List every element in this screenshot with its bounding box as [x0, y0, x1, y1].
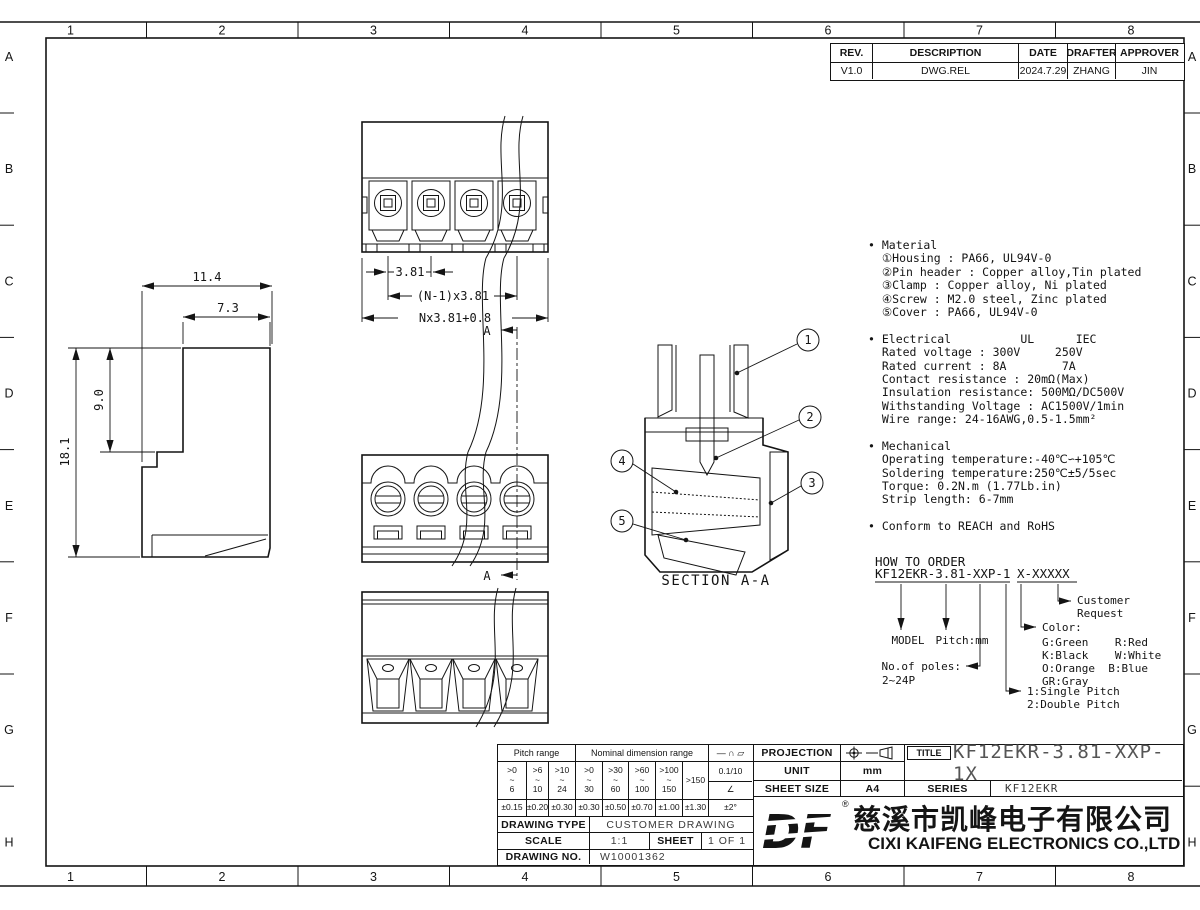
zone-label: A [5, 50, 14, 64]
company-logo: DF [758, 803, 844, 859]
screws [371, 482, 534, 539]
tol-cell: ±0.15 [498, 800, 526, 816]
note-line: Torque: 0.2N.m (1.77Lb.in) [868, 479, 1168, 492]
zone-label: F [5, 611, 13, 625]
drafter-header: DRAFTER [1067, 44, 1115, 62]
rev-header: REV. [831, 44, 872, 62]
zone-label: 4 [522, 870, 529, 884]
order-type-2: 2:Double Pitch [1027, 698, 1120, 711]
angle-tol-cell: ±2° [708, 800, 752, 816]
note-line: Wire range: 24-16AWG,0.5-1.5mm² [868, 412, 1168, 425]
tol-cell: ±0.30 [575, 800, 602, 816]
zone-label: 1 [67, 870, 74, 884]
note-line: • Mechanical [868, 439, 1168, 452]
section-marker-top: A [483, 324, 491, 338]
balloon-5: 5 [618, 514, 625, 528]
company-block: DF ® 慈溪市凯峰电子有限公司 CIXI KAIFENG ELECTRONIC… [754, 796, 1183, 864]
break-lines [452, 116, 523, 727]
zone-label: 2 [219, 24, 226, 38]
tolerance-table: Pitch range Nominal dimension range — ∩ … [497, 744, 754, 866]
tol-cell: ±0.70 [628, 800, 655, 816]
note-line: Withstanding Voltage : AC1500V/1min [868, 399, 1168, 412]
note-line: • Electrical UL IEC [868, 332, 1168, 345]
balloon-4: 4 [618, 454, 625, 468]
tol-cell: ±0.50 [602, 800, 628, 816]
approver-header: APPROVER [1115, 44, 1183, 62]
sheet-value: 1 OF 1 [701, 833, 752, 849]
order-pitch-label: Pitch:mm [936, 634, 989, 647]
range-cell: >0~6 [498, 762, 526, 799]
order-customer-1: Customer [1077, 594, 1130, 607]
registered-trademark: ® [842, 799, 849, 809]
drawing-type-label: DRAWING TYPE [498, 817, 589, 832]
zone-label: C [4, 274, 13, 288]
drawing-type-value: CUSTOMER DRAWING [589, 817, 752, 832]
how-to-order: HOW TO ORDER KF12EKR-3.81-XXP-1 X-XXXXX … [875, 554, 1161, 711]
general-notes: • Material ①Housing : PA66, UL94V-0 ②Pin… [868, 238, 1168, 533]
note-line [868, 425, 1168, 438]
revision-row: V1.0 DWG.REL 2024.7.29 ZHANG JIN [831, 62, 1184, 80]
drawing-no-value: W10001362 [589, 850, 752, 864]
zone-label: H [1187, 835, 1196, 849]
rev-value: V1.0 [831, 63, 872, 80]
zone-label: 5 [673, 24, 680, 38]
drawing-no-label: DRAWING NO. [498, 850, 589, 864]
scale-value: 1:1 [589, 833, 649, 849]
balloon-1: 1 [804, 333, 811, 347]
zone-label: 7 [976, 24, 983, 38]
bottom-view [362, 592, 548, 723]
zone-label: A [1188, 50, 1197, 64]
tol-cell: ±1.30 [682, 800, 708, 816]
sheet-size-label: SHEET SIZE [754, 781, 840, 796]
note-line: ③Clamp : Copper alloy, Ni plated [868, 278, 1168, 291]
zone-label: D [1187, 387, 1196, 401]
zone-label: E [1188, 499, 1196, 513]
order-color-row-2: K:Black W:White [1042, 649, 1161, 662]
revision-table: REV. DESCRIPTION DATE DRAFTER APPROVER V… [830, 43, 1185, 81]
zone-label: 4 [522, 24, 529, 38]
scale-label: SCALE [498, 833, 589, 849]
dim-3-81: 3.81 [396, 265, 425, 279]
zone-label: 7 [976, 870, 983, 884]
side-view: 11.4 7.3 9.0 18.1 [58, 270, 272, 557]
company-name-en: CIXI KAIFENG ELECTRONICS CO.,LTD [868, 834, 1180, 854]
drafter-value: ZHANG [1067, 63, 1115, 80]
tol-cell: ±0.20 [526, 800, 548, 816]
projection-label: PROJECTION [754, 745, 840, 761]
order-color-row-1: G:Green R:Red [1042, 636, 1148, 649]
range-cell: >60~100 [628, 762, 655, 799]
zone-label: B [1188, 162, 1196, 176]
date-value: 2024.7.29 [1018, 63, 1067, 80]
tol-cell: ±1.00 [655, 800, 682, 816]
pitch-range-header: Pitch range [498, 745, 575, 761]
zone-label: G [1187, 723, 1197, 737]
unit-value: mm [840, 762, 904, 780]
note-line: Soldering temperature:250℃±5/5sec [868, 466, 1168, 479]
range-cell: >100~150 [655, 762, 682, 799]
dim-9-0: 9.0 [92, 389, 106, 411]
zone-label: 6 [825, 24, 832, 38]
tol-cell: ±0.30 [548, 800, 575, 816]
flatness-tolerance: 0.1/10 ∠ [708, 762, 752, 799]
note-line: Insulation resistance: 500MΩ/DC500V [868, 385, 1168, 398]
range-cell: >30~60 [602, 762, 628, 799]
dim-7-3: 7.3 [217, 301, 239, 315]
note-line: Strip length: 6-7mm [868, 492, 1168, 505]
zone-label: 1 [67, 24, 74, 38]
note-line: Contact resistance : 20mΩ(Max) [868, 372, 1168, 385]
sheet-size-value: A4 [840, 781, 904, 796]
balloon-3: 3 [808, 476, 815, 490]
note-line: ④Screw : M2.0 steel, Zinc plated [868, 292, 1168, 305]
first-angle-projection-icon [840, 745, 904, 761]
section-view: 1 2 3 4 5 SECTION A-A [611, 329, 823, 589]
date-header: DATE [1018, 44, 1067, 62]
title-label: TITLE [907, 746, 951, 760]
zone-label: G [4, 723, 14, 737]
sheet-label: SHEET [649, 833, 701, 849]
order-color-row-3: O:Orange B:Blue [1042, 662, 1148, 675]
top-view-dims: 3.81 (N-1)x3.81 Nx3.81+0.8 [362, 256, 548, 325]
note-line [868, 318, 1168, 331]
nominal-range-header: Nominal dimension range [575, 745, 708, 761]
note-line: ②Pin header : Copper alloy,Tin plated [868, 265, 1168, 278]
order-customer-2: Request [1077, 607, 1123, 620]
order-poles-range: 2~24P [882, 674, 915, 687]
zone-label: D [4, 387, 13, 401]
order-code-suffix: X-XXXXX [1017, 566, 1070, 581]
title-block: PROJECTION UNIT mm SHEET SIZE A4 [753, 744, 1184, 866]
note-line: Rated voltage : 300V 250V [868, 345, 1168, 358]
range-cell: >10~24 [548, 762, 575, 799]
engineering-drawing-sheet: 1122334455667788AABBCCDDEEFFGGHH 11.4 7.… [0, 0, 1200, 910]
unit-label: UNIT [754, 762, 840, 780]
order-code-main: KF12EKR-3.81-XXP-1 [875, 566, 1010, 581]
note-line: ⑤Cover : PA66, UL94V-0 [868, 305, 1168, 318]
zone-label: 6 [825, 870, 832, 884]
zone-label: 2 [219, 870, 226, 884]
zone-label: C [1187, 274, 1196, 288]
approver-value: JIN [1115, 63, 1183, 80]
note-line: Operating temperature:-40℃∽+105℃ [868, 452, 1168, 465]
zone-label: 3 [370, 24, 377, 38]
order-color-title: Color: [1042, 621, 1082, 634]
balloon-2: 2 [806, 410, 813, 424]
range-cell: >6~10 [526, 762, 548, 799]
dim-total: Nx3.81+0.8 [419, 311, 491, 325]
description-value: DWG.REL [872, 63, 1018, 80]
zone-label: 5 [673, 870, 680, 884]
zone-label: F [1188, 611, 1196, 625]
drawing-title: KF12EKR-3.81-XXP-1X [953, 745, 1182, 780]
order-model-label: MODEL [891, 634, 924, 647]
zone-label: 8 [1128, 24, 1135, 38]
description-header: DESCRIPTION [872, 44, 1018, 62]
zone-label: 3 [370, 870, 377, 884]
note-line [868, 506, 1168, 519]
section-marker-bottom: A [483, 569, 491, 583]
section-label: SECTION A-A [661, 573, 770, 589]
dim-11-4: 11.4 [193, 270, 222, 284]
note-line: Rated current : 8A 7A [868, 359, 1168, 372]
order-poles-label: No.of poles: [882, 660, 961, 673]
order-type-1: 1:Single Pitch [1027, 685, 1120, 698]
zone-label: E [5, 499, 13, 513]
zone-label: 8 [1128, 870, 1135, 884]
dim-n-1-pitch: (N-1)x3.81 [417, 289, 489, 303]
zone-label: B [5, 162, 13, 176]
geometry-symbols: — ∩ ▱ [708, 745, 752, 761]
front-view [362, 455, 548, 562]
note-line: • Material [868, 238, 1168, 251]
dim-18-1: 18.1 [58, 438, 72, 467]
note-line: ①Housing : PA66, UL94V-0 [868, 251, 1168, 264]
clamp-units [366, 181, 544, 252]
range-cell-max: >150 [682, 762, 708, 799]
top-view: 3.81 (N-1)x3.81 Nx3.81+0.8 [362, 122, 548, 325]
balloon-callouts: 1 2 3 4 5 [611, 329, 823, 542]
zone-label: H [4, 835, 13, 849]
range-cell: >0~30 [575, 762, 602, 799]
note-line: • Conform to REACH and RoHS [868, 519, 1168, 532]
company-name-cn: 慈溪市凯峰电子有限公司 [853, 798, 1172, 838]
section-cut-line: A A [483, 324, 517, 583]
